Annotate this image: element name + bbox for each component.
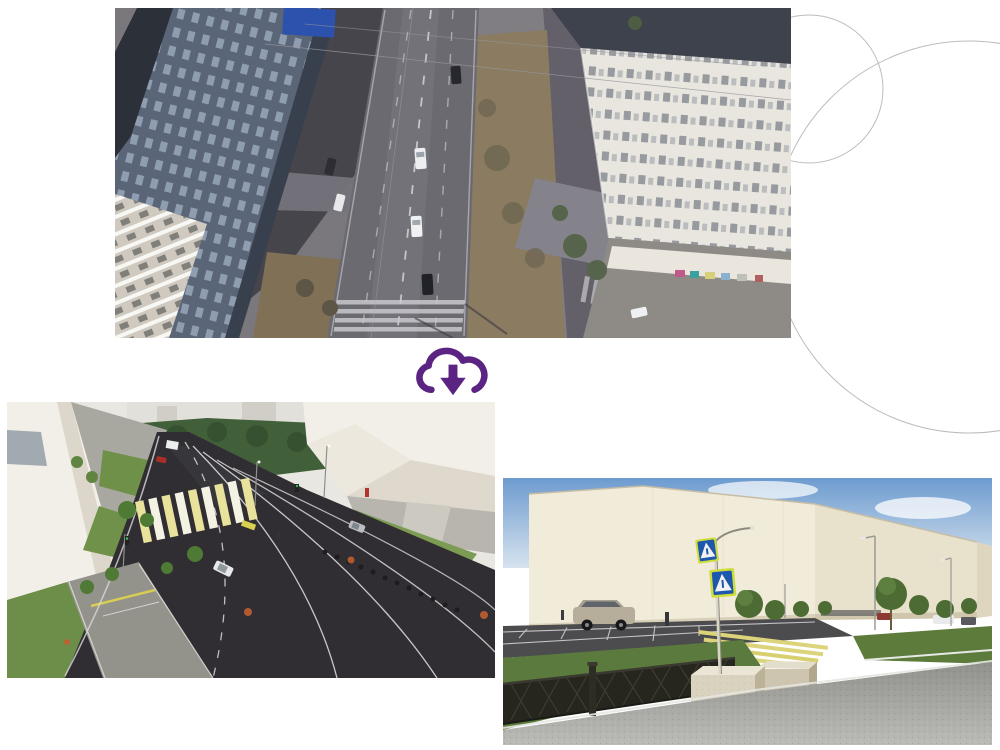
render-intersection-after: [7, 402, 495, 678]
download-arrow: [438, 364, 468, 398]
cloud-download-icon: [406, 341, 500, 401]
crosswalk-sign-bottom: [709, 568, 736, 598]
aerial-photo-scene: [115, 8, 791, 338]
render-crossing-after: [503, 478, 992, 745]
crosswalk-sign-top: [695, 537, 719, 564]
cloud-download-glyph: [406, 341, 500, 401]
shops-strip: [583, 238, 791, 338]
intersection-render-scene: [7, 402, 495, 678]
blue-kiosk-roof: [282, 8, 336, 38]
crossing-render-scene: [503, 478, 992, 745]
decor-circle-large: [773, 41, 1000, 433]
slide-canvas: [0, 0, 1000, 750]
aerial-photo-before: [115, 8, 791, 338]
